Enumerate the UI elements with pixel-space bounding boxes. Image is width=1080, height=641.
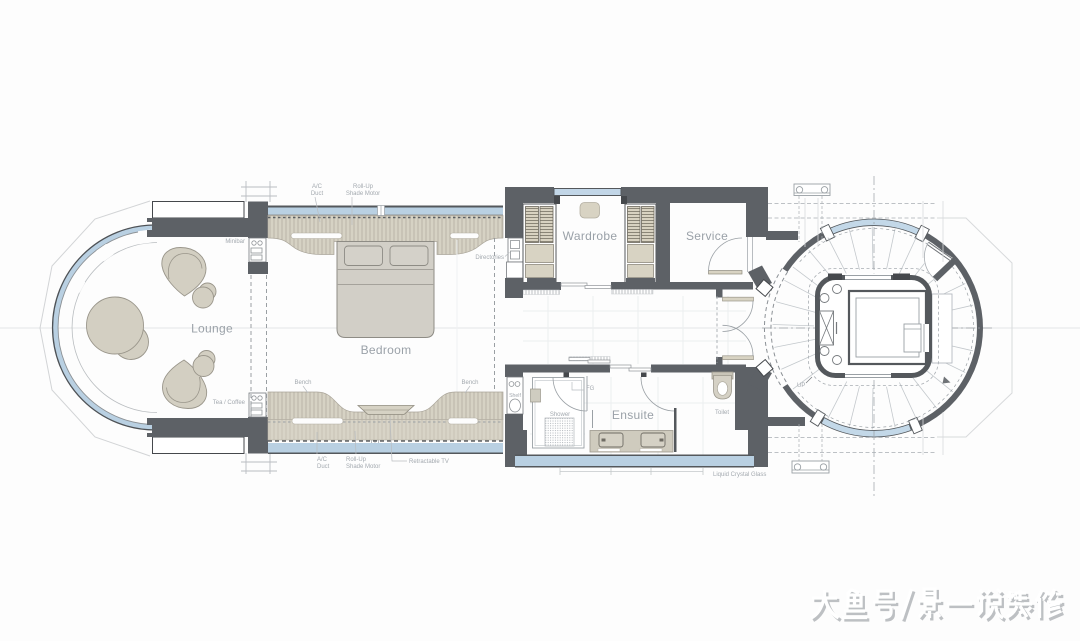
svg-text:Tea / Coffee: Tea / Coffee [213, 400, 246, 406]
svg-text:Bench: Bench [294, 380, 311, 386]
svg-text:Lounge: Lounge [191, 322, 233, 336]
svg-text:Ensuite: Ensuite [612, 408, 654, 422]
svg-text:Wardrobe: Wardrobe [563, 229, 618, 243]
svg-text:Directories: Directories [475, 255, 504, 261]
svg-text:Shower: Shower [550, 412, 570, 418]
svg-text:UP: UP [797, 383, 805, 389]
svg-text:Service: Service [686, 229, 728, 243]
svg-text:Minibar: Minibar [225, 239, 245, 245]
svg-text:Shade Motor: Shade Motor [346, 191, 380, 197]
svg-text:Bedroom: Bedroom [361, 343, 412, 357]
svg-text:Duct: Duct [317, 464, 330, 470]
svg-text:A/C: A/C [312, 184, 323, 190]
svg-text:A/C: A/C [317, 457, 328, 463]
svg-text:FG: FG [586, 386, 595, 392]
svg-text:Liquid Crystal Glass: Liquid Crystal Glass [713, 472, 766, 478]
svg-text:Toilet: Toilet [715, 410, 729, 416]
svg-text:Shelf: Shelf [509, 393, 521, 399]
svg-text:Roll-Up: Roll-Up [346, 457, 367, 463]
svg-text:Bench: Bench [461, 380, 478, 386]
svg-text:Roll-Up: Roll-Up [353, 184, 374, 190]
svg-text:Shade Motor: Shade Motor [346, 464, 380, 470]
svg-text:Duct: Duct [311, 191, 324, 197]
svg-text:Retractable TV: Retractable TV [409, 459, 449, 465]
